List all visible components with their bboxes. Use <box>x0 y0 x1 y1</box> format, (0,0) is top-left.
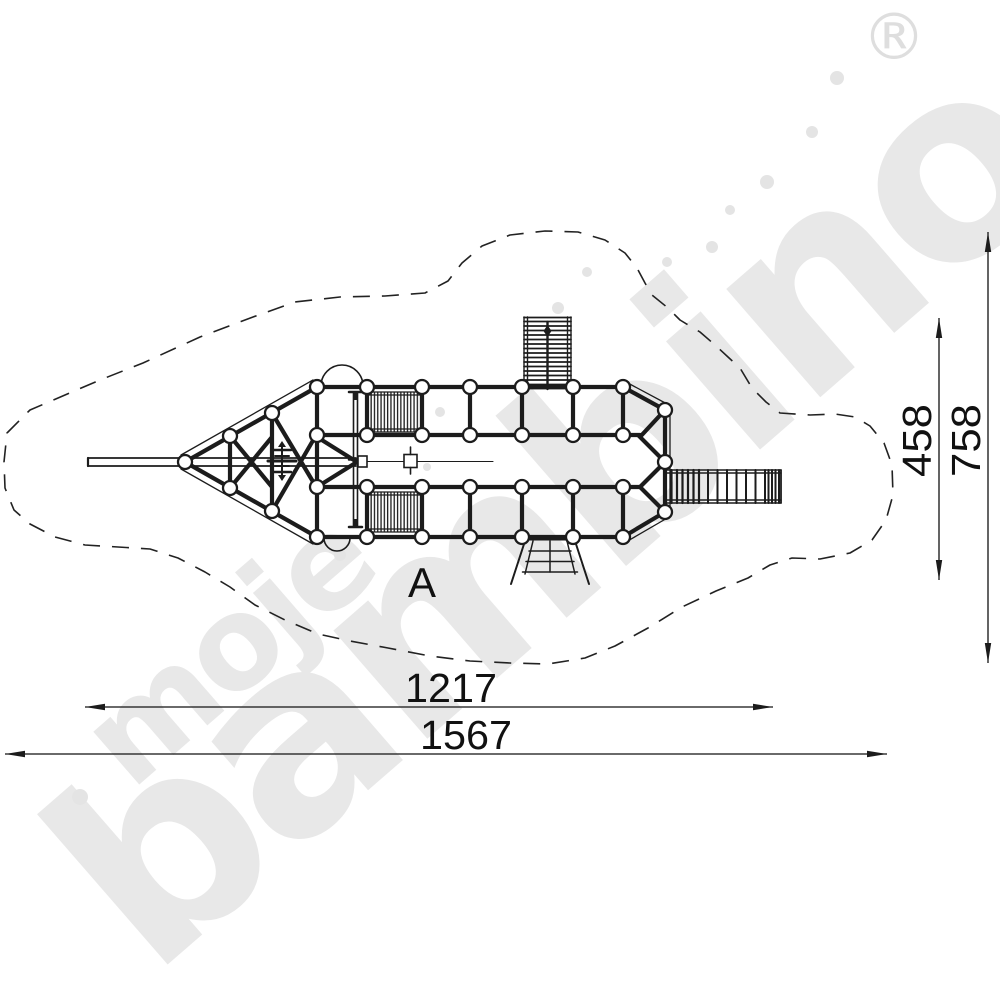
dimension-safety-zone-length: 1567 <box>5 712 887 758</box>
dimension-label-458: 458 <box>894 404 940 477</box>
section-label-a: A <box>408 559 436 606</box>
rope-bridge-bottom <box>366 492 423 532</box>
slide <box>666 470 781 503</box>
entry-ladder <box>524 317 571 389</box>
dimension-equipment-width: 458 <box>894 318 942 580</box>
climbing-net <box>511 539 589 584</box>
crow-nest-arc-bottom <box>324 538 350 551</box>
playground-ship-plan-drawing: 1217 1567 458 758 A <box>0 0 1000 1000</box>
dimension-label-1217: 1217 <box>405 665 497 711</box>
dimension-label-758: 758 <box>943 404 989 477</box>
safety-zone-outline <box>4 231 893 664</box>
dimension-label-1567: 1567 <box>420 712 512 758</box>
dimension-safety-zone-width: 758 <box>943 232 991 663</box>
dimension-equipment-length: 1217 <box>85 665 773 711</box>
technical-plan-page: moje bambino ® <box>0 0 1000 1000</box>
crow-nest-arc-top <box>321 365 363 386</box>
steering-detail <box>358 447 493 474</box>
rope-bridge-top <box>366 392 423 432</box>
